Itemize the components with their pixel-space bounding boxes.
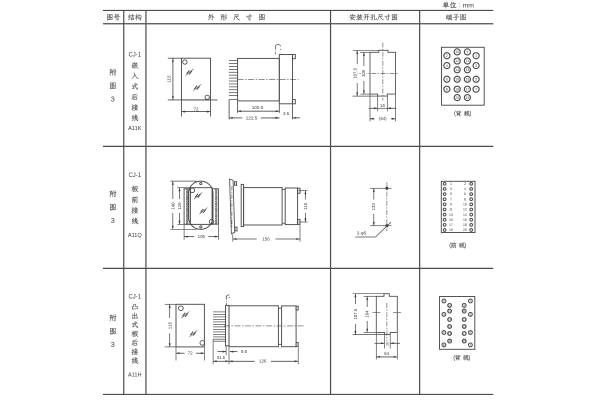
svg-text:CJ-1: CJ-1 [128, 53, 141, 59]
svg-text:4: 4 [446, 64, 448, 68]
svg-text:6: 6 [446, 77, 448, 81]
svg-text:115: 115 [167, 321, 172, 329]
svg-text:140: 140 [170, 202, 175, 210]
svg-text:7: 7 [475, 87, 477, 91]
svg-text:156: 156 [262, 236, 270, 241]
svg-text:115: 115 [303, 202, 308, 209]
svg-text:72: 72 [188, 351, 194, 356]
svg-text:3: 3 [111, 216, 115, 225]
svg-text:72: 72 [193, 106, 199, 111]
svg-text:(: ( [449, 243, 451, 249]
svg-text:17: 17 [449, 223, 453, 227]
svg-text:): ) [468, 355, 470, 361]
svg-text:CJ-1: CJ-1 [128, 294, 141, 300]
svg-text:1: 1 [450, 182, 452, 186]
svg-text:(: ( [453, 355, 455, 361]
svg-text:12: 12 [463, 208, 467, 212]
svg-text:125: 125 [177, 202, 182, 210]
svg-text:): ) [469, 111, 471, 117]
svg-text:): ) [464, 243, 466, 249]
svg-text:3: 3 [450, 187, 452, 191]
svg-text:16: 16 [380, 103, 385, 108]
svg-text:3: 3 [475, 64, 477, 68]
svg-text:8: 8 [446, 87, 448, 91]
svg-text:15: 15 [465, 77, 469, 81]
svg-text:20: 20 [463, 228, 467, 232]
svg-text:14: 14 [455, 68, 459, 72]
svg-text:133: 133 [371, 203, 376, 211]
svg-text:2: 2 [464, 182, 466, 186]
svg-text:19: 19 [449, 228, 453, 232]
svg-text:9: 9 [450, 202, 452, 206]
svg-text:6: 6 [464, 192, 466, 196]
svg-text:4: 4 [464, 187, 466, 191]
svg-text:107.5: 107.5 [352, 67, 357, 78]
svg-text:122.5: 122.5 [246, 115, 258, 120]
svg-text:100.5: 100.5 [252, 105, 264, 110]
svg-text:8: 8 [464, 197, 466, 201]
svg-text:16: 16 [455, 77, 459, 81]
svg-text:CJ-1: CJ-1 [128, 173, 141, 179]
svg-text:14: 14 [463, 213, 467, 217]
svg-text:A11H: A11H [128, 372, 142, 378]
svg-text:3: 3 [111, 340, 115, 349]
svg-text:20: 20 [455, 96, 459, 100]
svg-text:5: 5 [475, 77, 477, 81]
svg-text:(: ( [454, 111, 456, 117]
svg-text:A11K: A11K [128, 126, 142, 132]
svg-text:12: 12 [455, 59, 459, 63]
svg-text::: : [459, 2, 461, 9]
svg-text:A11Q: A11Q [128, 233, 143, 239]
svg-text:10: 10 [463, 202, 467, 206]
svg-text:105: 105 [198, 234, 206, 239]
svg-text:9.5: 9.5 [241, 349, 248, 354]
svg-text:3: 3 [111, 94, 115, 103]
svg-text:31.5: 31.5 [217, 355, 226, 360]
svg-text:7: 7 [450, 197, 452, 201]
svg-text:15: 15 [449, 218, 453, 222]
svg-text:2: 2 [446, 54, 448, 58]
svg-text:3.5: 3.5 [283, 111, 290, 116]
svg-text:9: 9 [466, 50, 468, 54]
svg-text:126: 126 [259, 358, 267, 363]
svg-text:16: 16 [386, 342, 390, 346]
svg-text:105: 105 [361, 69, 366, 77]
svg-text:mm: mm [463, 3, 475, 10]
svg-text:13: 13 [465, 68, 469, 72]
svg-text:11: 11 [449, 208, 453, 212]
svg-text:19: 19 [465, 96, 469, 100]
svg-text:18: 18 [455, 87, 459, 91]
svg-text:18: 18 [463, 223, 467, 227]
svg-text:115: 115 [167, 75, 172, 83]
svg-text:16: 16 [463, 218, 467, 222]
svg-text:10: 10 [455, 50, 459, 54]
svg-text:104: 104 [365, 310, 370, 318]
svg-text:1: 1 [475, 54, 477, 58]
svg-text:(64): (64) [379, 116, 387, 121]
svg-text:11: 11 [466, 59, 470, 63]
svg-text:13: 13 [449, 213, 453, 217]
svg-text:5: 5 [450, 192, 452, 196]
svg-text:2-φ5: 2-φ5 [357, 231, 367, 236]
svg-text:64: 64 [384, 351, 389, 356]
svg-text:17: 17 [465, 87, 469, 91]
svg-text:107.5: 107.5 [353, 308, 358, 319]
